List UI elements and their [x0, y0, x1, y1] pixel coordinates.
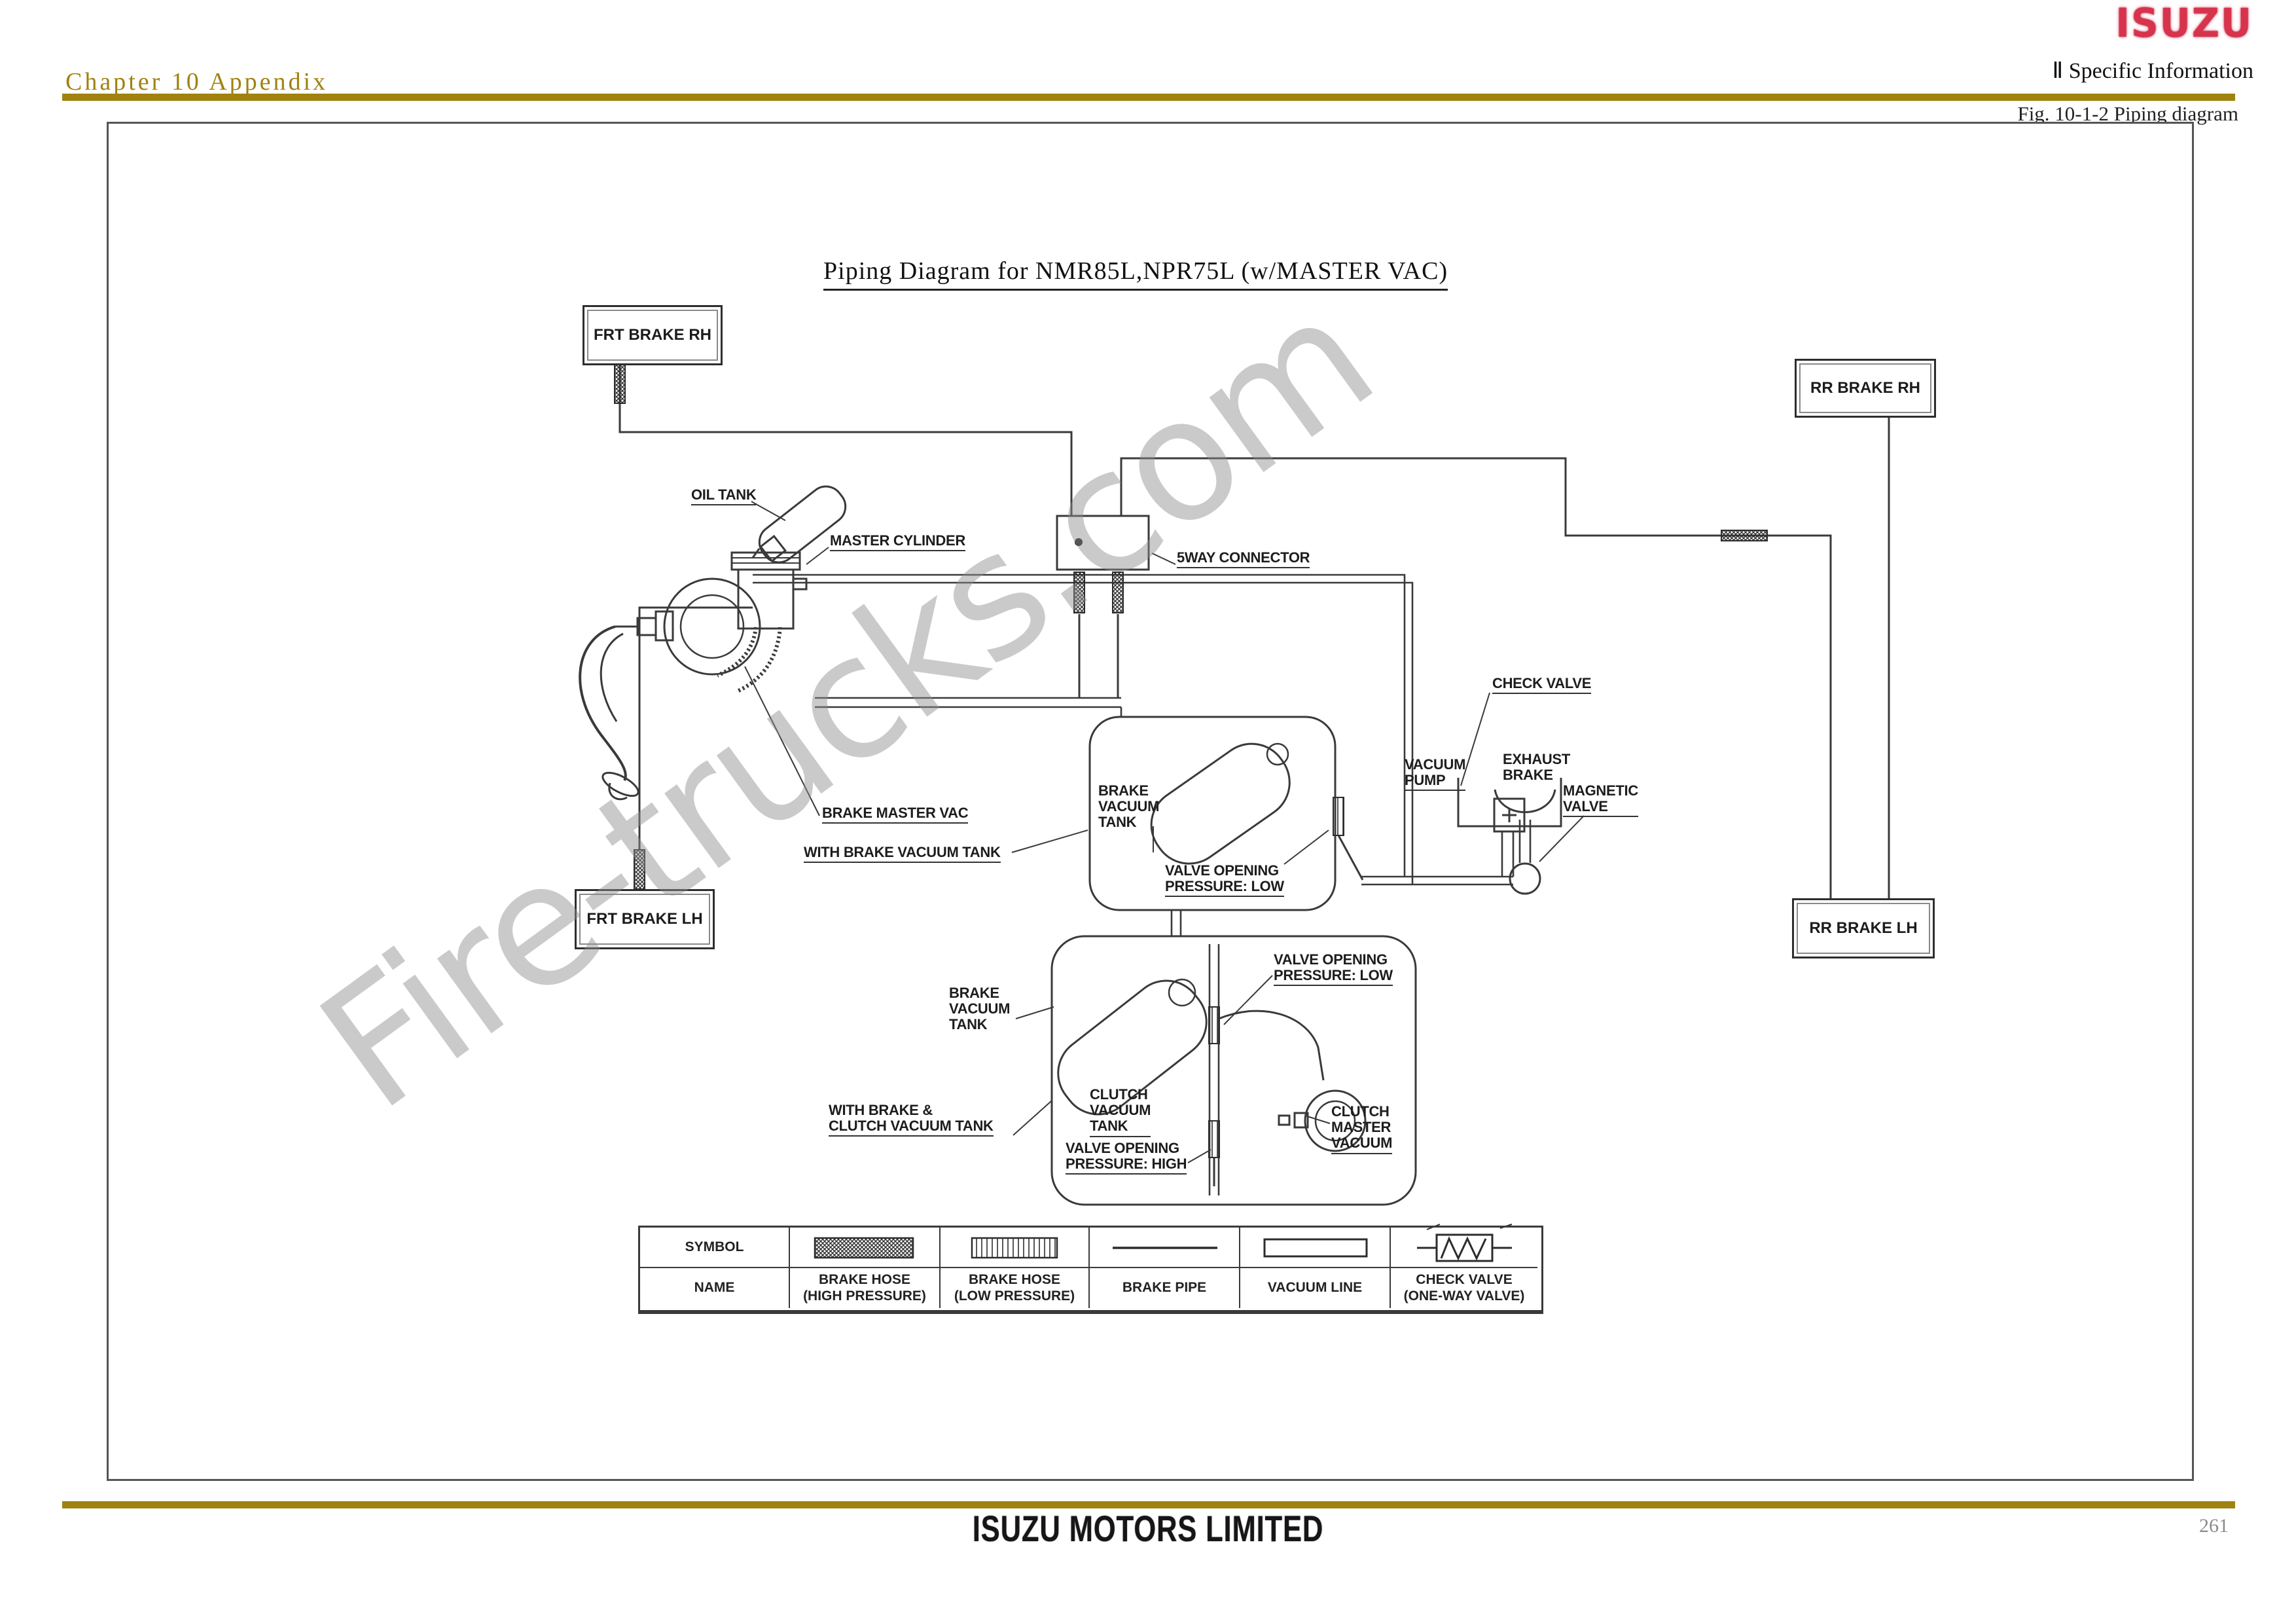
- brake-vacuum-tank-drawing-1: [1138, 730, 1304, 878]
- manual-page: Chapter 10 Appendix ISUZU Ⅱ Specific Inf…: [0, 0, 2296, 1623]
- five-way-connector-label: 5WAY CONNECTOR: [1177, 550, 1310, 568]
- legend-symbol-cell: [1088, 1228, 1239, 1268]
- five-way-connector-box: [1057, 516, 1149, 570]
- legend-name-vacuum-line: VACUUM LINE: [1239, 1268, 1390, 1308]
- brake-pedal-arm: [580, 627, 626, 780]
- legend-symbol-cell: [789, 1228, 939, 1268]
- five-way-connector-port: [1075, 538, 1083, 546]
- exhaust-brake-label: EXHAUST BRAKE: [1503, 752, 1570, 783]
- oil-tank-label: OIL TANK: [691, 487, 756, 505]
- frt-brake-lh-box: FRT BRAKE LH: [575, 889, 715, 949]
- vacuum-pump-label: VACUUM PUMP: [1405, 757, 1465, 791]
- hose-low-icon: [1209, 1121, 1219, 1158]
- check-valve-label: CHECK VALVE: [1492, 676, 1591, 694]
- legend-row-header-symbol: SYMBOL: [640, 1228, 789, 1268]
- legend-table: SYMBOL NAME BRAKE HOSE (HIGH PRESSURE) B…: [638, 1226, 1543, 1314]
- legend-name-check-valve: CHECK VALVE (ONE-WAY VALVE): [1390, 1268, 1537, 1308]
- frt-brake-rh-box: FRT BRAKE RH: [583, 305, 723, 365]
- hose-symbols: [615, 364, 1767, 1158]
- valve-opening-pressure-low-label-2: VALVE OPENING PRESSURE: LOW: [1274, 952, 1393, 986]
- legend-symbol-cell: [1239, 1228, 1390, 1268]
- clutch-vacuum-tank-label: CLUTCH VACUUM TANK: [1090, 1087, 1151, 1137]
- rr-brake-lh-box: RR BRAKE LH: [1792, 898, 1935, 958]
- hose-low-icon: [1333, 797, 1344, 835]
- with-brake-clutch-vacuum-tank-label: WITH BRAKE & CLUTCH VACUUM TANK: [829, 1103, 994, 1137]
- brake-pedal-pad: [600, 768, 641, 800]
- with-brake-vacuum-tank-label: WITH BRAKE VACUUM TANK: [804, 845, 1001, 863]
- magnetic-valve-label: MAGNETIC VALVE: [1563, 783, 1638, 817]
- master-cylinder-drawing: [580, 480, 852, 801]
- hose-low-icon: [1209, 1007, 1219, 1044]
- hose-high-icon: [1074, 572, 1085, 613]
- legend-name-brake-pipe: BRAKE PIPE: [1088, 1268, 1239, 1308]
- brake-vacuum-tank-label-2: BRAKE VACUUM TANK: [949, 985, 1010, 1033]
- brake-master-vac-label: BRAKE MASTER VAC: [822, 805, 968, 824]
- legend-symbol-cell: [939, 1228, 1088, 1268]
- hose-high-icon: [615, 364, 625, 403]
- valve-opening-pressure-low-label-1: VALVE OPENING PRESSURE: LOW: [1165, 863, 1284, 897]
- legend-name-brake-hose-low: BRAKE HOSE (LOW PRESSURE): [939, 1268, 1088, 1308]
- brake-pipe-routes: [620, 361, 1889, 1186]
- legend-row-header-name: NAME: [640, 1268, 789, 1308]
- legend-name-brake-hose-high: BRAKE HOSE (HIGH PRESSURE): [789, 1268, 939, 1308]
- clutch-master-vacuum-label: CLUTCH MASTER VACUUM: [1331, 1104, 1392, 1154]
- hose-high-icon: [634, 850, 645, 889]
- valve-opening-pressure-high-label: VALVE OPENING PRESSURE: HIGH: [1066, 1140, 1187, 1175]
- magnetic-valve-symbol: [1510, 864, 1540, 894]
- master-cylinder-label: MASTER CYLINDER: [830, 533, 965, 551]
- label-leader-lines: [745, 501, 1584, 1163]
- rr-brake-rh-box: RR BRAKE RH: [1795, 359, 1936, 418]
- brake-master-vac-booster: [664, 579, 760, 674]
- hose-high-icon: [1721, 530, 1767, 541]
- hose-high-icon: [1113, 572, 1123, 613]
- brake-vacuum-tank-label-1: BRAKE VACUUM TANK: [1098, 783, 1159, 831]
- legend-symbol-cell: [1390, 1228, 1537, 1268]
